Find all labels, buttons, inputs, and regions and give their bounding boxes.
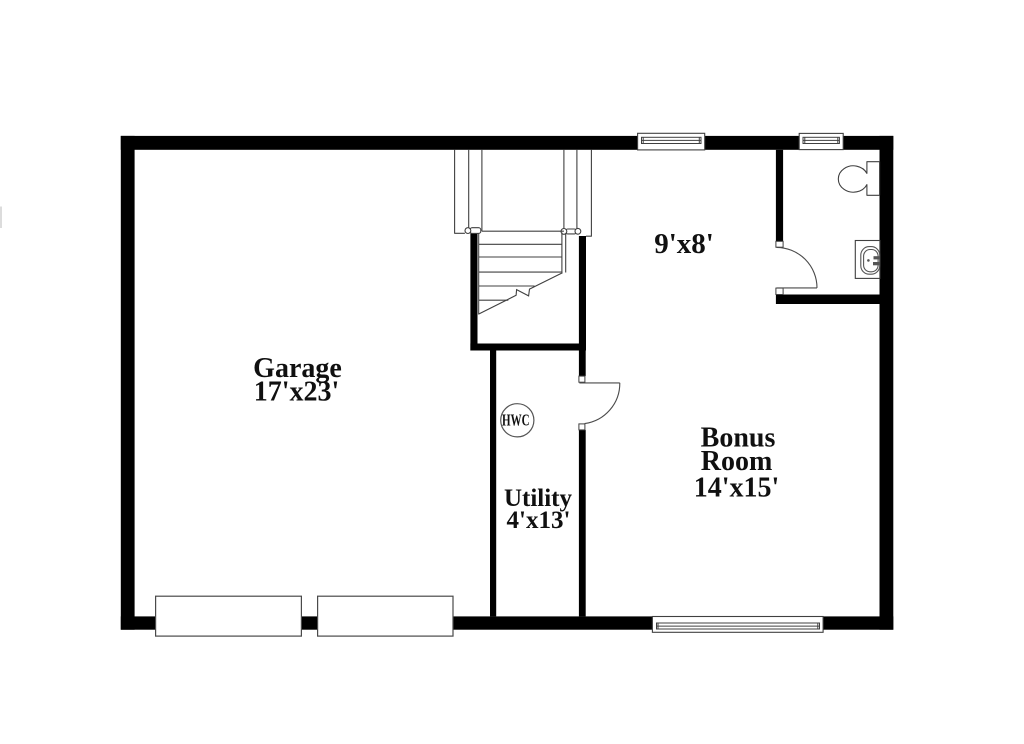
svg-text:4'x13': 4'x13' [507, 507, 571, 534]
svg-text:14'x15': 14'x15' [694, 472, 780, 503]
svg-text:9'x8': 9'x8' [654, 228, 714, 260]
svg-text:17'x23': 17'x23' [254, 376, 340, 407]
svg-text:HWC: HWC [502, 410, 530, 429]
